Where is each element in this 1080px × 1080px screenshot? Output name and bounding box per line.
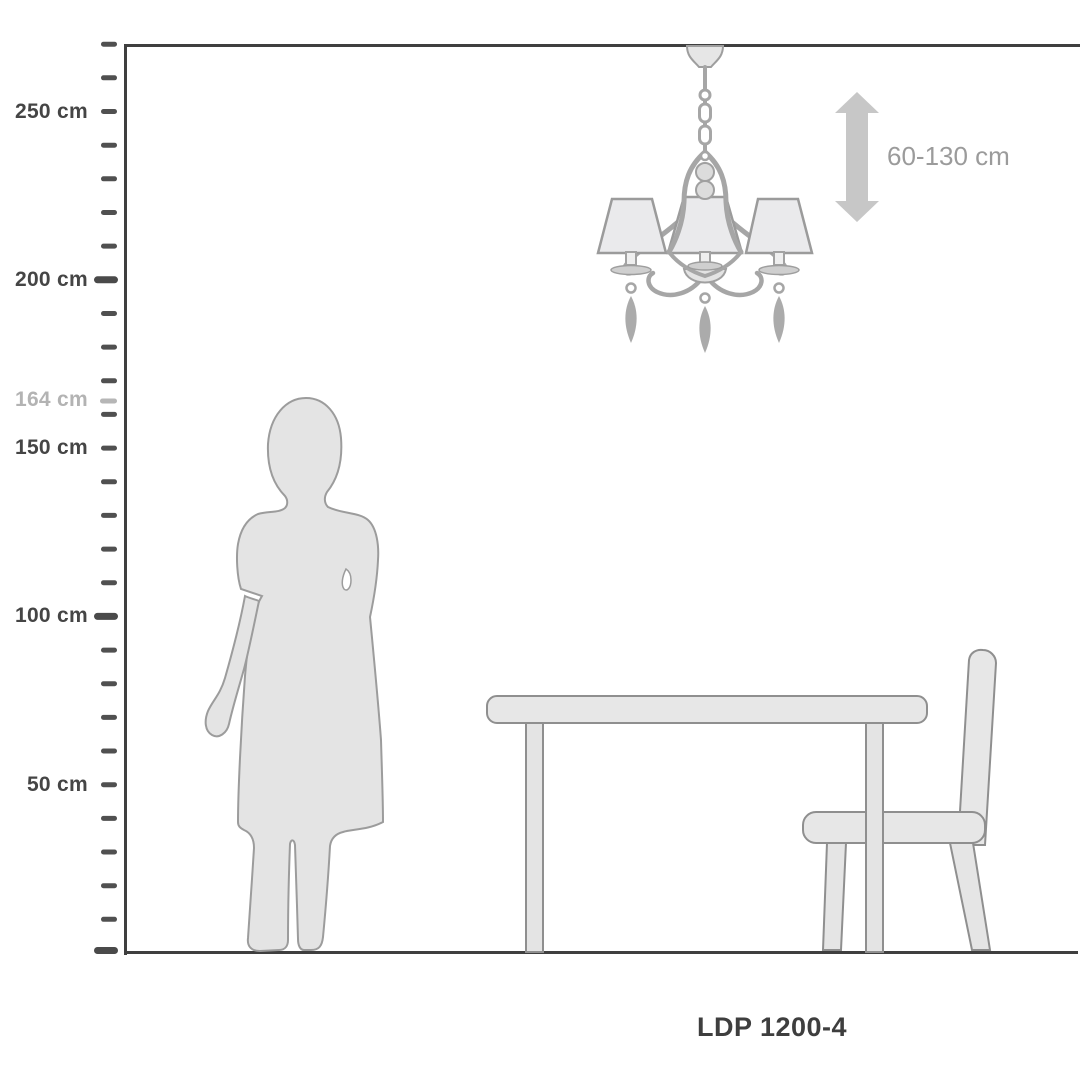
chain-link [700,90,710,100]
ruler-label-150: 150 cm [0,433,88,463]
table-leg-left [526,722,543,952]
chair [803,650,996,950]
chair-rear-leg [950,843,990,950]
candle-left [626,252,636,265]
chandelier-canopy [687,46,723,67]
ruler-label-164-person-height: 164 cm [0,385,88,415]
pendant-ring [775,284,784,293]
chair-front-leg [823,843,846,950]
person-body [237,398,383,951]
crystal-drop-left [625,296,636,343]
table-top [487,696,927,723]
ceiling-line [124,44,1080,47]
crystal-drop-center [699,306,710,353]
candle-right [774,252,784,265]
product-code: LDP 1200-4 [647,1011,897,1043]
lamp-shade-right [746,199,812,253]
tick-164cm [100,399,117,404]
size-diagram: 250 cm 200 cm 164 cm 150 cm 100 cm 50 cm… [0,0,1080,1080]
lamp-shade-left [598,199,666,253]
tick-0cm [94,947,118,954]
crystal-drop-right [773,296,784,343]
wall-line [124,44,127,955]
bobeche-center [688,262,722,270]
tick-100cm [94,613,118,620]
ruler-ticks [94,42,118,954]
cage-bead [696,181,714,199]
pendant-ring [627,284,636,293]
ruler-label-50: 50 cm [0,770,88,800]
pendant-ring [701,294,710,303]
cage-bead [696,163,714,181]
chandelier [598,46,812,353]
chain-link [700,104,711,122]
person-silhouette [206,398,383,951]
ruler-label-200: 200 cm [0,265,88,295]
ruler-label-250: 250 cm [0,97,88,127]
table-leg-right [866,722,883,952]
height-range-arrow [835,92,879,222]
chain-link [700,126,711,144]
ruler-label-100: 100 cm [0,601,88,631]
chair-seat [803,812,985,843]
height-range-label: 60-130 cm [887,141,1010,171]
cage-ring [701,152,709,160]
tick-200cm [94,276,118,283]
bobeche-right [759,266,799,275]
bobeche-left [611,266,651,275]
